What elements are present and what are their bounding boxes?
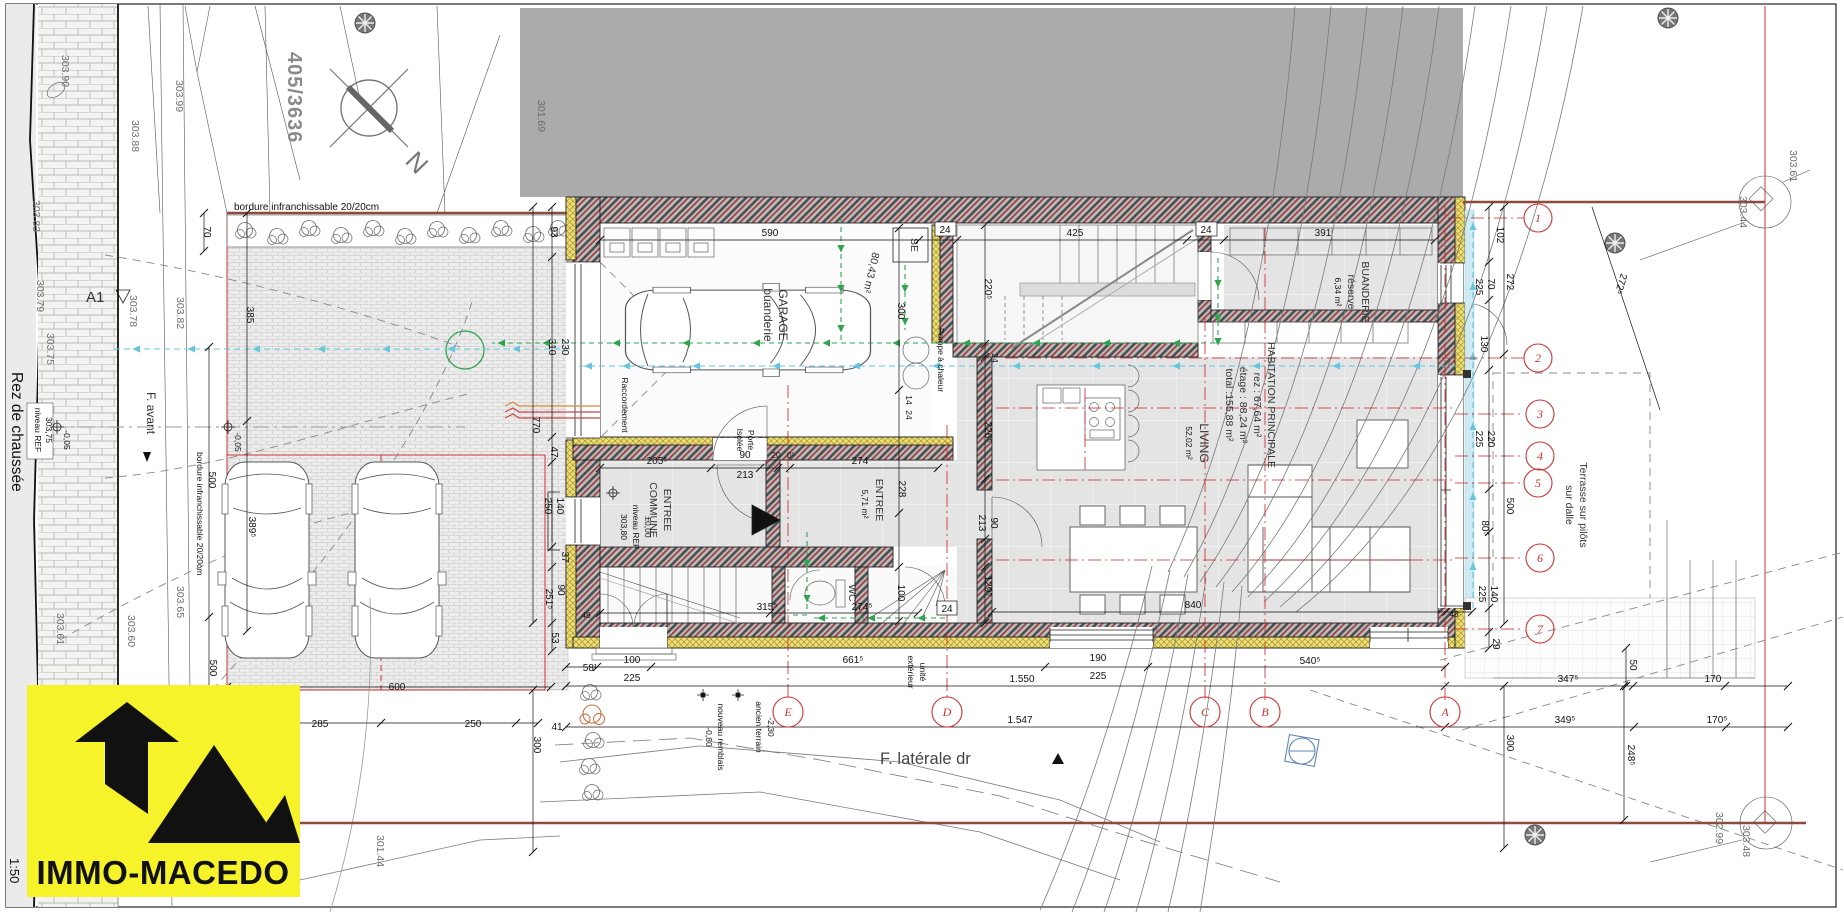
dim: 90	[988, 517, 999, 529]
buanderie-label: BUANDERIE	[1359, 261, 1371, 322]
dim: 225	[1473, 431, 1484, 448]
dim: 24	[1200, 225, 1212, 236]
garage-car	[626, 283, 871, 376]
niveau-entree: ±0,00	[643, 516, 653, 537]
dim: 53	[549, 632, 560, 644]
dim: 840	[1185, 600, 1202, 611]
dim: 540⁵	[1300, 656, 1321, 667]
dim: 272⁵	[1612, 272, 1629, 295]
axis-3: 3	[1536, 407, 1543, 421]
elevation: 303.60	[125, 615, 137, 647]
dim: 770	[530, 417, 541, 434]
elevation: 301.69	[535, 100, 547, 132]
terrasse-label2: sur dalle	[1563, 485, 1575, 525]
dim: 130	[1478, 336, 1489, 353]
axis-B: B	[1261, 705, 1269, 719]
remblais2: nouveau remblais	[716, 703, 726, 770]
axis-4: 4	[1537, 449, 1543, 463]
niveau-ref2: 303,75	[44, 417, 54, 443]
raccordement-label: Raccordement	[620, 377, 630, 433]
dim: 47	[548, 446, 559, 458]
north-letter: N	[400, 145, 435, 179]
dim: 41	[551, 722, 563, 733]
dim: 310	[546, 339, 557, 356]
dim: 225	[1476, 586, 1487, 603]
dim: 385	[244, 307, 255, 324]
bordure-left-label: bordure infranchissable 20/20cm	[195, 452, 205, 575]
dim: 213	[737, 470, 754, 481]
axis-C: C	[1201, 705, 1210, 719]
elevation: 303.82	[174, 297, 186, 329]
hedge-top	[227, 215, 570, 247]
pompe-label: Pompe à chaleur	[936, 328, 946, 392]
dim: 220	[1485, 431, 1496, 448]
dim: 590	[762, 228, 779, 239]
dim: 300	[895, 303, 906, 320]
dim: 24	[941, 604, 953, 615]
living-label: LIVING	[1197, 423, 1211, 462]
parked-car	[218, 462, 316, 658]
utility-symbol	[1285, 735, 1319, 767]
entree-area: 5,71 m²	[860, 490, 870, 519]
f-avant-arrow	[143, 452, 151, 462]
dim: 425	[1067, 228, 1084, 239]
axis-E: E	[783, 705, 792, 719]
floor-title: Rez de chaussée	[8, 372, 25, 492]
dim: 250	[542, 498, 553, 515]
tree-icon	[1658, 8, 1678, 28]
dim: 213	[976, 515, 987, 532]
dim: 300	[1504, 735, 1515, 752]
floorplan-sheet: N 405/3636	[0, 0, 1844, 916]
elevation: 303.79	[34, 280, 46, 312]
dim: 274	[852, 456, 869, 467]
dim: 600	[389, 682, 406, 693]
dim: 90	[739, 450, 751, 461]
elevation: 303.88	[129, 120, 141, 152]
dim: 347⁵	[1558, 674, 1579, 685]
habitation-total: total :155,88 m²	[1223, 369, 1235, 442]
axis-A: A	[1440, 705, 1449, 719]
dim: 391	[1315, 228, 1332, 239]
dim: 140	[554, 498, 565, 515]
buanderie-area: 6,34 m²	[1333, 278, 1343, 307]
dim: 24	[939, 225, 951, 236]
remblais: -0,80	[704, 727, 714, 747]
entree-label: ENTREE	[873, 479, 885, 522]
tree-icon	[1605, 233, 1625, 253]
dim: 225	[1090, 671, 1107, 682]
dim: 272	[1504, 274, 1515, 291]
terrasse-label: Terrasse sur pilôts	[1577, 462, 1589, 547]
parked-car	[348, 462, 446, 658]
f-laterale-label: F. latérale dr	[880, 750, 971, 768]
dim: 251⁵	[543, 589, 554, 610]
dim: 205⁵	[647, 456, 668, 467]
tree-icon	[355, 13, 375, 33]
niveau-entree2: niveau REF	[631, 505, 641, 549]
dim: 349⁵	[1555, 715, 1576, 726]
dim: 248⁵	[1625, 745, 1636, 766]
unite-ext: unité	[918, 663, 928, 682]
dim: 389⁵	[246, 517, 257, 538]
axis-1: 1	[1535, 211, 1541, 225]
minus005-drive: -0,05	[233, 432, 243, 452]
neighbor-building	[520, 8, 1463, 197]
ancien-terrain2: -2,30	[766, 717, 776, 737]
dim: 274⁵	[852, 602, 873, 613]
dim: 500	[207, 660, 218, 677]
parcel-number: 405/3636	[283, 52, 305, 143]
porte-isolee2: Isolée	[735, 429, 745, 452]
dim: 1.547	[1007, 715, 1032, 726]
dim: 170	[1705, 674, 1722, 685]
dim: 129⁵	[982, 576, 993, 597]
section-a1-label: A1	[86, 289, 104, 306]
dim: 250	[465, 719, 482, 730]
parcel-boundary-lines	[148, 6, 500, 213]
niveau-ref-box: niveau REF 303,75	[27, 403, 54, 459]
axis-5: 5	[1535, 476, 1541, 490]
entree-commune: ENTREE	[661, 489, 673, 532]
dim: 0⁵	[787, 450, 795, 460]
dim: 220⁵	[982, 279, 993, 300]
dim: 14	[904, 395, 914, 405]
tree-icon	[1525, 825, 1545, 845]
elevation: 303.61	[54, 613, 66, 645]
elevation: 303.78	[127, 295, 139, 327]
dim: 226⁵	[982, 422, 993, 443]
dim: 90	[555, 584, 566, 596]
dim: 315⁵	[757, 602, 778, 613]
immo-macedo-logo: IMMO-MACEDO	[27, 685, 300, 897]
dim: 102	[1494, 227, 1505, 244]
axis-6: 6	[1537, 551, 1543, 565]
dim: 500	[1504, 498, 1515, 515]
dim: 93	[548, 226, 559, 238]
unite-ext2: extérieur	[906, 655, 916, 688]
dim: 48	[1449, 609, 1459, 619]
dim: 24	[904, 410, 914, 420]
dim: 80⁵	[1479, 520, 1490, 535]
ancien-terrain: ancien terrain	[754, 701, 764, 753]
dim: 225	[624, 673, 641, 684]
dim: 70	[1485, 278, 1496, 290]
garage-label: GARAGE	[776, 289, 790, 340]
dim: 190	[1090, 653, 1107, 664]
niveau-ref1: niveau REF	[33, 408, 43, 452]
porte-isolee: Porte	[746, 430, 756, 451]
hedge-side	[580, 685, 605, 801]
habitation-rez: rez : 67,64 m²	[1251, 373, 1263, 438]
elevation: 303.48	[1740, 825, 1752, 857]
elevation: 303.90	[59, 55, 71, 87]
dim: 48	[581, 610, 591, 620]
dim: 140	[1488, 586, 1499, 603]
dim: 29	[1490, 638, 1501, 650]
dim: 70	[201, 226, 212, 238]
elevation: 303.44	[1737, 196, 1749, 228]
dim: 37	[559, 551, 570, 563]
dim: 100	[624, 655, 641, 666]
dim: 20	[771, 450, 781, 460]
garage-label2: buanderie	[761, 288, 775, 342]
dim: 1.550	[1009, 674, 1034, 685]
dim: 228	[896, 481, 907, 498]
buanderie-label2: réserve	[1345, 274, 1357, 309]
living-area: 52,02 m²	[1184, 426, 1194, 460]
dim: 230	[559, 339, 570, 356]
scale-label: 1:50	[7, 858, 22, 883]
wc-label: WC	[846, 584, 858, 602]
elevation: 303.99	[173, 80, 185, 112]
elevation: 303.83	[30, 200, 42, 232]
bordure-top-label: bordure infranchissable 20/20cm	[234, 202, 379, 213]
elevation: 302.99	[1713, 812, 1725, 844]
dim: 225	[1473, 279, 1484, 296]
elevation: 301.44	[374, 835, 386, 867]
habitation-label: HABITATION PRINCIPALE	[1265, 342, 1277, 468]
f-avant-label: F. avant	[144, 392, 158, 435]
logo-text: IMMO-MACEDO	[37, 854, 290, 891]
axis-D: D	[942, 705, 952, 719]
niveau-entree3: 303,80	[619, 514, 629, 540]
north-compass-icon: N	[330, 69, 434, 180]
elevation: 303.65	[174, 586, 186, 618]
dim: 285	[312, 719, 329, 730]
dim: 500	[206, 472, 217, 489]
elevation: 303.61	[1787, 150, 1799, 182]
dim: 58¹	[583, 663, 598, 674]
minus005-street: -0,05	[62, 430, 72, 450]
dim: 50	[1627, 659, 1638, 671]
dim: 661⁵	[843, 655, 864, 666]
dim: 100	[895, 585, 906, 602]
dim: 170⁵	[1707, 715, 1728, 726]
axis-2: 2	[1535, 351, 1541, 365]
axis-7: 7	[1537, 622, 1544, 636]
f-laterale-arrow	[1052, 753, 1064, 764]
elevation: 303.75	[44, 333, 56, 365]
side-table	[1357, 420, 1408, 468]
dim: 24	[990, 353, 1000, 363]
habitation-etage: étage : 88,24 m²	[1237, 367, 1249, 444]
dim: 300	[531, 737, 542, 754]
